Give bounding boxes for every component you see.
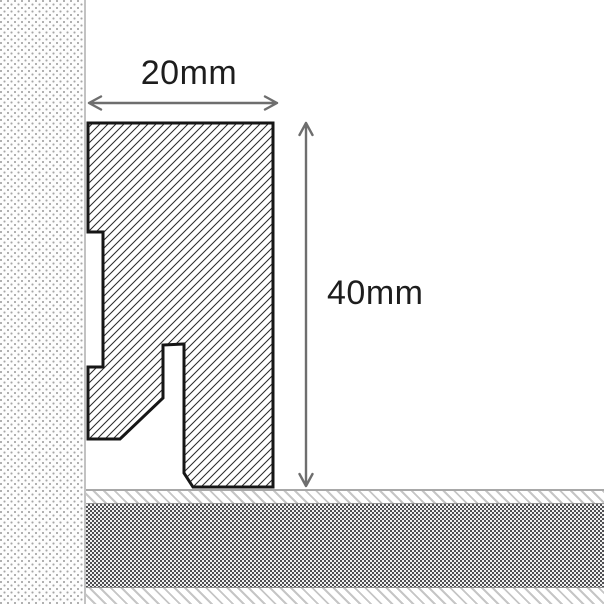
- width-dimension-label: 20mm: [141, 56, 237, 90]
- height-dimension-label: 40mm: [327, 276, 423, 310]
- profile-shape: [88, 123, 273, 487]
- width-dimension-arrow: [89, 97, 277, 110]
- diagram-canvas: 20mm 40mm: [0, 0, 604, 604]
- profile-drawing: [0, 0, 604, 604]
- height-dimension-arrow: [300, 123, 313, 486]
